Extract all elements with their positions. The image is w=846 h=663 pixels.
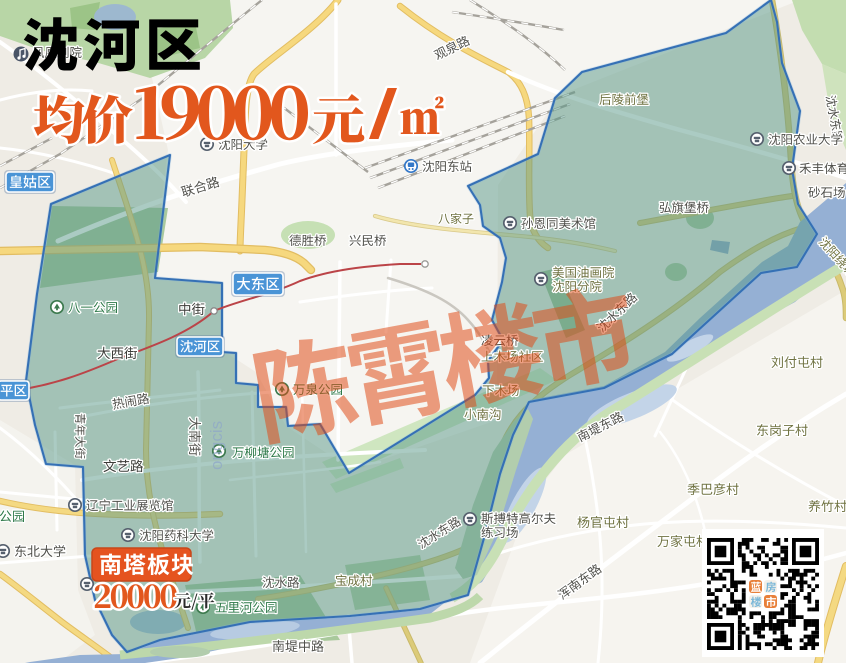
svg-text:ongcis: ongcis <box>207 421 226 470</box>
